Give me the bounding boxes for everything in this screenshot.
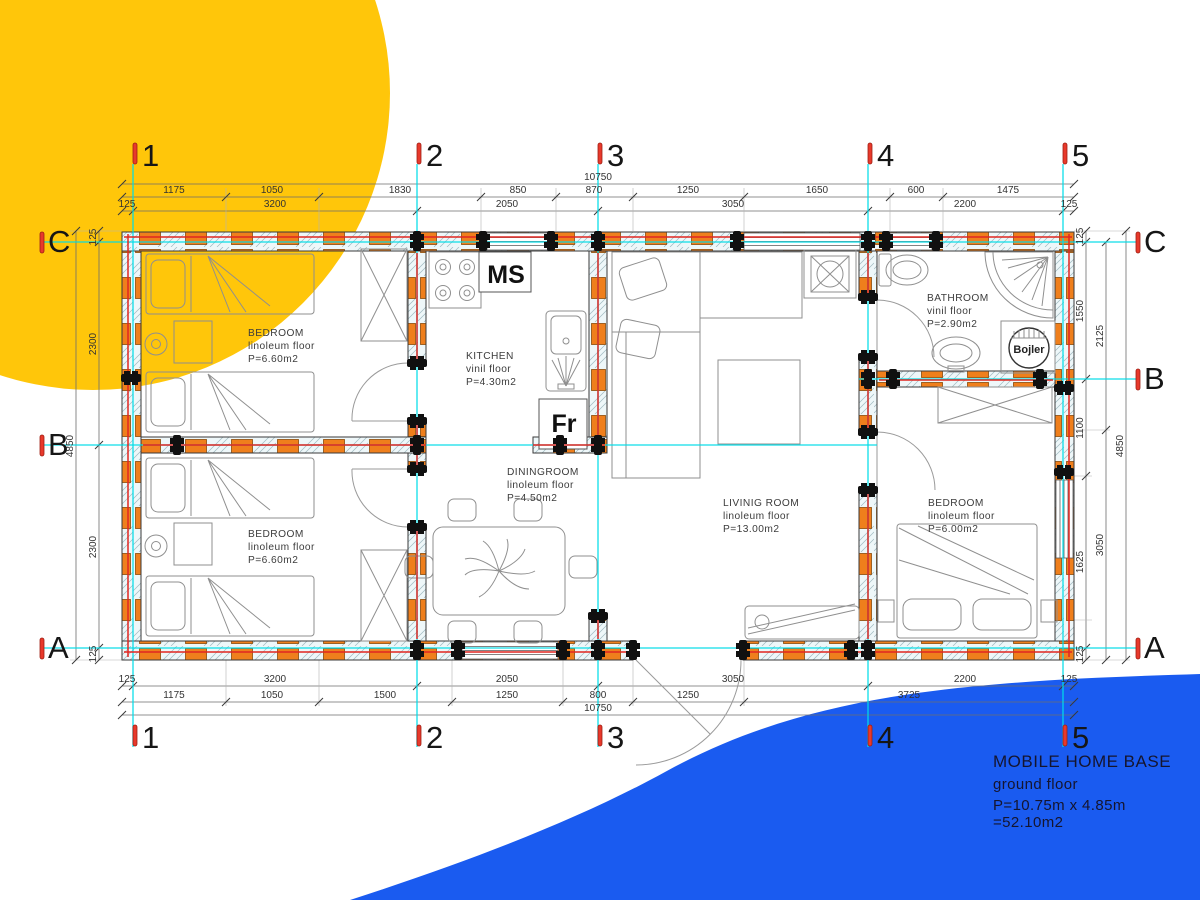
dim: 125 <box>119 199 136 210</box>
dim: 800 <box>590 690 607 701</box>
dim: 2200 <box>954 674 977 685</box>
grid-row-a-right: A <box>1144 630 1165 665</box>
room-bedroom-tl-area: P=6.60m2 <box>248 354 298 365</box>
dim: 600 <box>908 185 925 196</box>
toilet-icon <box>879 254 928 286</box>
dim: 125 <box>1061 674 1078 685</box>
room-bedroom-r-area: P=6.00m2 <box>928 524 978 535</box>
wardrobe <box>361 550 407 641</box>
grid-col-3-top: 3 <box>607 138 624 173</box>
boiler-label: Bojler <box>1013 344 1045 356</box>
dining-table <box>405 499 597 643</box>
room-kitchen-name: KITCHEN <box>466 351 514 362</box>
dim: 1500 <box>374 690 397 701</box>
double-bed <box>897 524 1037 638</box>
dim: 2050 <box>496 199 519 210</box>
room-living-area: P=13.00m2 <box>723 524 779 535</box>
grid-row-a-left: A <box>48 630 69 665</box>
page: 1 2 3 4 5 1 2 3 4 5 C B A C B A 10750 11… <box>0 0 1200 900</box>
dim: 125 <box>1061 199 1078 210</box>
dim: 1100 <box>1075 417 1086 439</box>
room-living-floor: linoleum floor <box>723 511 790 522</box>
dim: 1050 <box>261 185 284 196</box>
room-bedroom-r-floor: linoleum floor <box>928 511 995 522</box>
wardrobe <box>361 249 407 341</box>
dim: 125 <box>88 228 99 245</box>
lamp-icon <box>145 535 167 557</box>
nightstand <box>878 600 894 622</box>
sink-icon <box>546 311 586 391</box>
grid-col-1-bottom: 1 <box>142 720 159 755</box>
fridge-label: Fr <box>552 410 577 438</box>
lamp-icon <box>145 333 167 355</box>
shower-icon <box>985 252 1053 318</box>
grid-col-2-top: 2 <box>426 138 443 173</box>
washbasin-icon <box>932 337 980 372</box>
dim: 3050 <box>1095 533 1106 556</box>
room-kitchen-area: P=4.30m2 <box>466 377 516 388</box>
dim: 1175 <box>163 185 185 196</box>
dim: 1175 <box>163 690 185 701</box>
coffee-table <box>718 360 800 444</box>
room-bedroom-r-name: BEDROOM <box>928 498 984 509</box>
dim: 3050 <box>722 199 745 210</box>
dim: 125 <box>88 645 99 662</box>
wall-left <box>122 251 141 641</box>
dim-bottom-total: 10750 <box>584 703 612 714</box>
title-line3: P=10.75m x 4.85m =52.10m2 <box>993 797 1200 831</box>
room-bathroom-area: P=2.90m2 <box>927 319 977 330</box>
grid-row-c-left: C <box>48 224 70 259</box>
nightstand <box>174 523 212 565</box>
dim: 850 <box>510 185 527 196</box>
grid-col-4-top: 4 <box>877 138 894 173</box>
grid-col-1-top: 1 <box>142 138 159 173</box>
room-bathroom-name: BATHROOM <box>927 293 989 304</box>
dim: 125 <box>119 674 136 685</box>
room-bedroom-tl-floor: linoleum floor <box>248 341 315 352</box>
dim: 3725 <box>898 690 921 701</box>
title-line2: ground floor <box>993 776 1200 793</box>
dim-right-total: 4850 <box>1115 434 1126 457</box>
room-bedroom-bl-area: P=6.60m2 <box>248 555 298 566</box>
dim: 125 <box>1075 227 1086 244</box>
grid-row-b-right: B <box>1144 361 1165 396</box>
dim-top-total: 10750 <box>584 172 612 183</box>
room-living-name: LIVINIG ROOM <box>723 498 799 509</box>
dim: 1250 <box>677 690 700 701</box>
dim-left-total: 4850 <box>65 434 76 457</box>
dim: 1830 <box>389 185 412 196</box>
wardrobe <box>938 387 1052 423</box>
room-dining-area: P=4.50m2 <box>507 493 557 504</box>
title-block: MOBILE HOME BASE ground floor P=10.75m x… <box>993 752 1200 831</box>
grid-col-2-bottom: 2 <box>426 720 443 755</box>
wall-right <box>1055 251 1074 641</box>
dim: 1625 <box>1075 550 1086 573</box>
room-bedroom-bl-floor: linoleum floor <box>248 542 315 553</box>
grid-row-c-right: C <box>1144 224 1166 259</box>
dim: 125 <box>1075 645 1086 662</box>
room-labels: BEDROOM linoleum floor P=6.60m2 BEDROOM … <box>248 261 1045 566</box>
title-line1: MOBILE HOME BASE <box>993 752 1200 772</box>
dim: 1475 <box>997 185 1020 196</box>
room-bathroom-floor: vinil floor <box>927 306 972 317</box>
room-bedroom-tl-name: BEDROOM <box>248 328 304 339</box>
dim: 870 <box>586 185 603 196</box>
dim: 2300 <box>88 332 99 355</box>
dim: 2300 <box>88 535 99 558</box>
dim: 1250 <box>677 185 700 196</box>
room-kitchen-floor: vinil floor <box>466 364 511 375</box>
dim: 2125 <box>1095 324 1106 347</box>
lounger <box>745 604 859 639</box>
stove-icon <box>429 252 481 308</box>
room-bedroom-bl-name: BEDROOM <box>248 529 304 540</box>
grid-col-5-top: 5 <box>1072 138 1089 173</box>
dim: 3050 <box>722 674 745 685</box>
dim: 1650 <box>806 185 829 196</box>
dim: 3200 <box>264 199 287 210</box>
dim: 3200 <box>264 674 287 685</box>
grid-col-4-bottom: 4 <box>877 720 894 755</box>
fireplace-stove <box>804 250 856 298</box>
wall-bottom-right <box>743 641 1074 660</box>
grid-col-3-bottom: 3 <box>607 720 624 755</box>
dim: 1550 <box>1075 299 1086 322</box>
dim: 1050 <box>261 690 284 701</box>
grid-col-5-bottom: 5 <box>1072 720 1089 755</box>
nightstand <box>174 321 212 363</box>
doors <box>352 300 935 765</box>
room-dining-name: DININGROOM <box>507 467 579 478</box>
dim: 2200 <box>954 199 977 210</box>
ms-label: MS <box>487 261 525 289</box>
room-dining-floor: linoleum floor <box>507 480 574 491</box>
dim: 1250 <box>496 690 519 701</box>
dim: 2050 <box>496 674 519 685</box>
